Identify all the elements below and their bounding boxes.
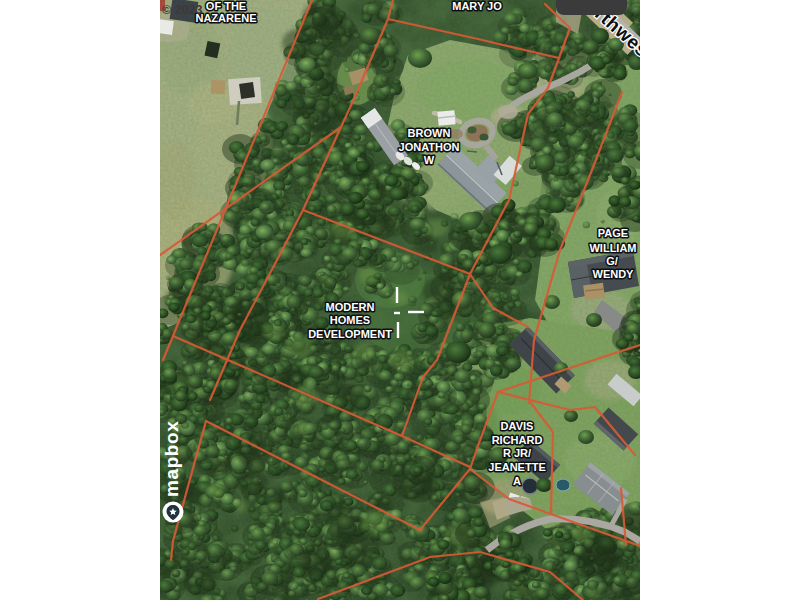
svg-text:NAZARENE: NAZARENE bbox=[195, 12, 256, 24]
svg-text:DAVIS: DAVIS bbox=[501, 420, 534, 432]
svg-text:G/: G/ bbox=[606, 255, 618, 267]
svg-text:R JR/: R JR/ bbox=[503, 447, 531, 459]
svg-text:MARY JO: MARY JO bbox=[452, 0, 502, 12]
svg-text:DEVELOPMENT: DEVELOPMENT bbox=[308, 328, 392, 340]
svg-text:RICHARD: RICHARD bbox=[492, 434, 543, 446]
svg-text:WILLIAM: WILLIAM bbox=[589, 242, 636, 254]
svg-text:HOMES: HOMES bbox=[330, 314, 370, 326]
svg-text:A: A bbox=[513, 475, 521, 487]
svg-text:© 2023: © 2023 bbox=[162, 3, 203, 17]
svg-text:BROWN: BROWN bbox=[408, 127, 451, 139]
svg-text:OF THE: OF THE bbox=[206, 0, 246, 12]
svg-text:PAGE: PAGE bbox=[598, 227, 628, 239]
svg-text:JONATHON: JONATHON bbox=[399, 141, 460, 153]
svg-text:MODERN: MODERN bbox=[326, 301, 375, 313]
svg-text:W: W bbox=[424, 154, 435, 166]
svg-text:mapbox: mapbox bbox=[161, 421, 182, 497]
svg-text:WENDY: WENDY bbox=[593, 268, 635, 280]
svg-text:JEANETTE: JEANETTE bbox=[488, 461, 545, 473]
